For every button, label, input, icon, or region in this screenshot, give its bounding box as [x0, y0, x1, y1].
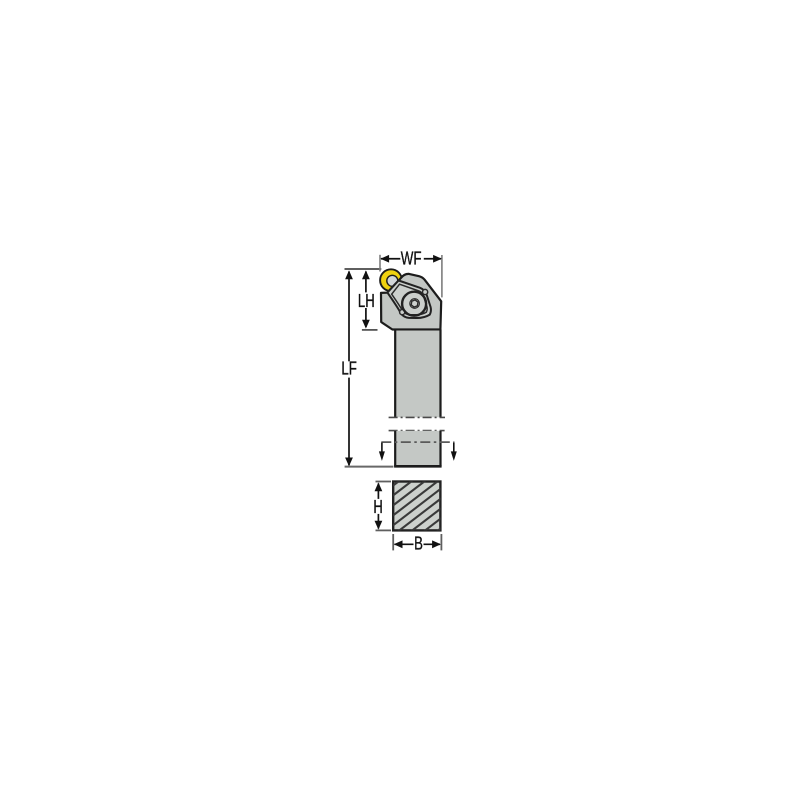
svg-text:LH: LH	[358, 290, 375, 311]
svg-text:LF: LF	[341, 358, 357, 379]
svg-text:WF: WF	[401, 247, 422, 268]
svg-text:B: B	[414, 533, 423, 554]
svg-text:H: H	[373, 496, 382, 517]
